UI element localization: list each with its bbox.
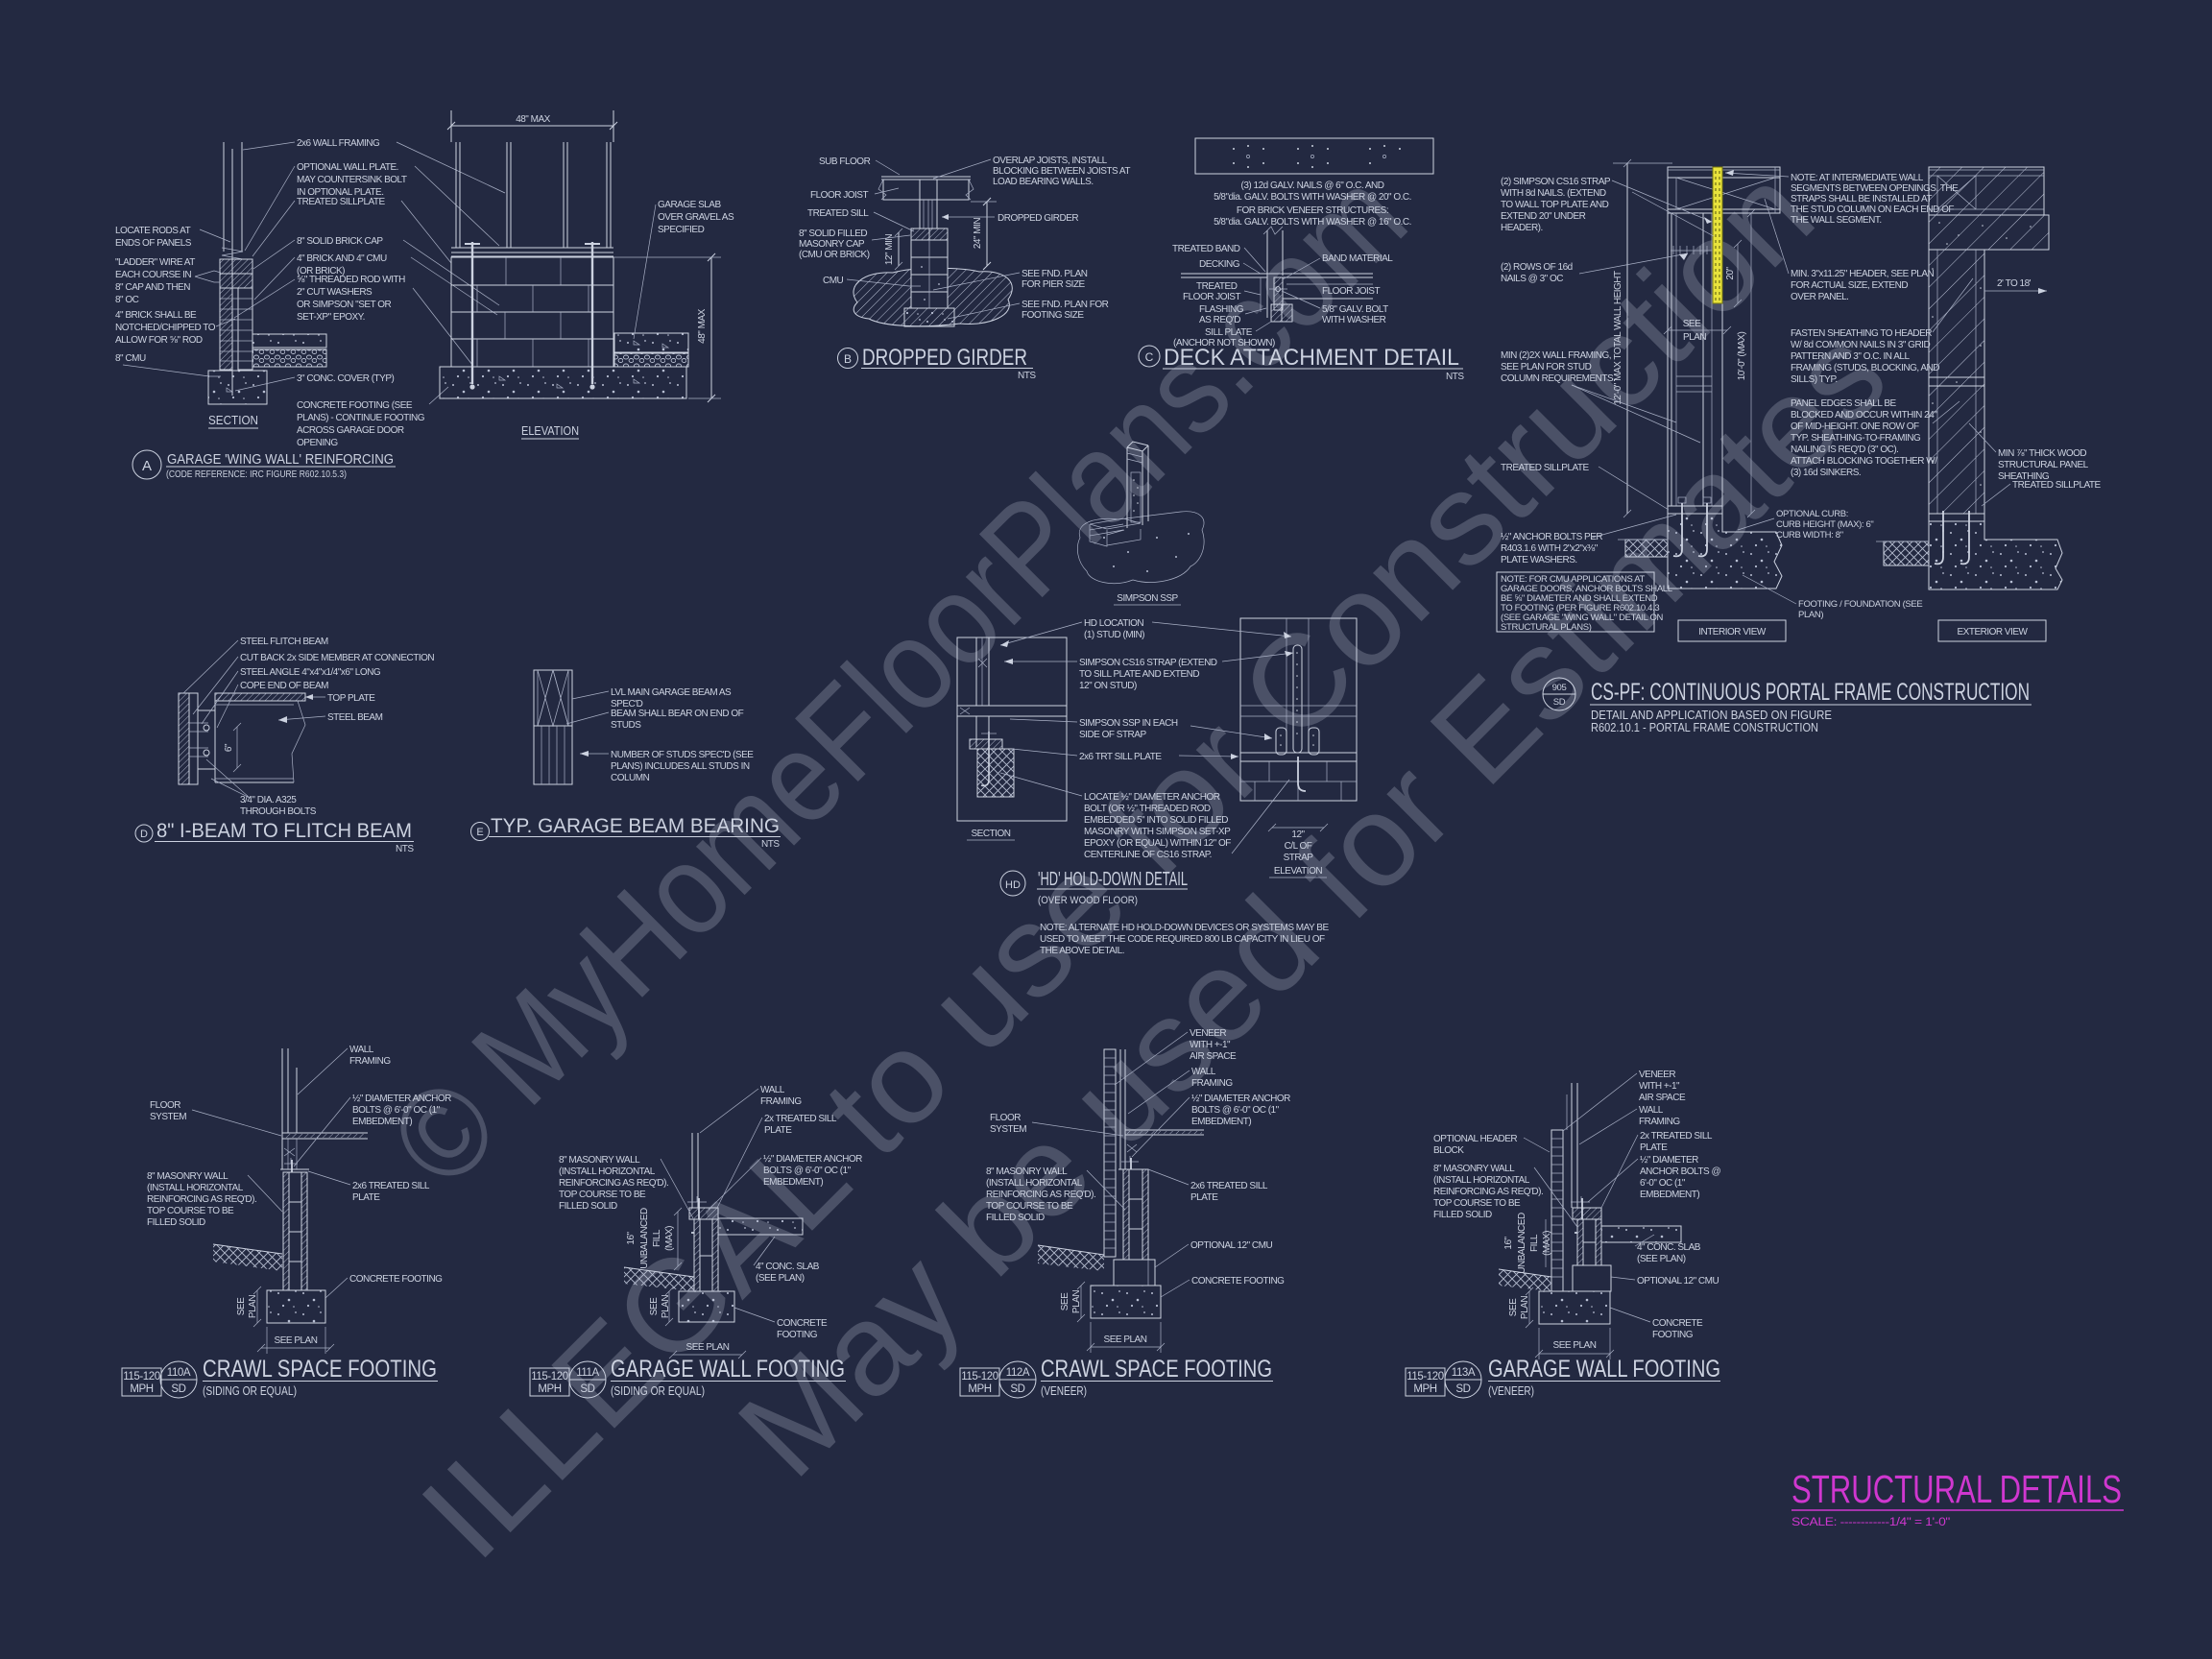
svg-text:THROUGH BOLTS: THROUGH BOLTS — [240, 806, 317, 817]
svg-text:OVER PANEL.: OVER PANEL. — [1791, 292, 1848, 302]
svg-text:OPTIONAL CURB:: OPTIONAL CURB: — [1776, 509, 1848, 519]
svg-text:MASONRY CAP: MASONRY CAP — [799, 239, 865, 250]
svg-text:SYSTEM: SYSTEM — [990, 1124, 1026, 1135]
svg-text:SILLS) TYP.: SILLS) TYP. — [1791, 374, 1838, 385]
svg-text:LOCATE ½" DIAMETER ANCHOR: LOCATE ½" DIAMETER ANCHOR — [1084, 792, 1220, 803]
svg-text:BAND MATERIAL: BAND MATERIAL — [1322, 253, 1393, 264]
svg-text:CONCRETE FOOTING (SEE: CONCRETE FOOTING (SEE — [297, 400, 413, 411]
svg-text:DROPPED GIRDER: DROPPED GIRDER — [862, 345, 1027, 371]
svg-text:W/ 8d COMMON NAILS IN 3" GRID: W/ 8d COMMON NAILS IN 3" GRID — [1791, 340, 1930, 350]
svg-text:(2) ROWS OF 16d: (2) ROWS OF 16d — [1501, 262, 1573, 273]
svg-text:PLAN: PLAN — [1071, 1290, 1082, 1313]
svg-text:3" CONC. COVER (TYP): 3" CONC. COVER (TYP) — [297, 373, 395, 384]
svg-text:LOAD BEARING WALLS.: LOAD BEARING WALLS. — [993, 177, 1094, 187]
svg-text:8" CMU: 8" CMU — [115, 353, 146, 364]
svg-text:SPECIFIED: SPECIFIED — [658, 225, 705, 235]
svg-text:MPH: MPH — [1413, 1383, 1436, 1395]
svg-text:STEEL FLITCH BEAM: STEEL FLITCH BEAM — [240, 637, 328, 647]
svg-text:PLAN): PLAN) — [1798, 610, 1823, 620]
svg-text:½" DIAMETER ANCHOR: ½" DIAMETER ANCHOR — [1191, 1094, 1290, 1104]
svg-text:FLOOR JOIST: FLOOR JOIST — [810, 190, 868, 201]
svg-text:12'-0" MAX TOTAL WALL HEIGHT: 12'-0" MAX TOTAL WALL HEIGHT — [1613, 271, 1623, 405]
svg-text:FOOTING: FOOTING — [777, 1330, 818, 1340]
svg-text:SEE PLAN: SEE PLAN — [1104, 1334, 1147, 1345]
svg-text:5/8" GALV. BOLT: 5/8" GALV. BOLT — [1322, 304, 1388, 315]
svg-text:NAILS @ 3" OC: NAILS @ 3" OC — [1501, 274, 1563, 284]
svg-text:ELEVATION: ELEVATION — [1274, 866, 1322, 877]
svg-text:FILLED SOLID: FILLED SOLID — [986, 1213, 1045, 1223]
svg-text:TREATED SILLPLATE: TREATED SILLPLATE — [1501, 463, 1590, 473]
svg-text:SD: SD — [171, 1383, 185, 1395]
svg-text:6": 6" — [224, 743, 234, 752]
svg-text:EMBEDMENT): EMBEDMENT) — [763, 1177, 823, 1188]
svg-text:VENEER: VENEER — [1639, 1070, 1675, 1080]
svg-text:FRAMING: FRAMING — [1639, 1117, 1680, 1127]
svg-text:½" DIAMETER ANCHOR: ½" DIAMETER ANCHOR — [763, 1154, 862, 1165]
svg-text:TO WALL TOP PLATE AND: TO WALL TOP PLATE AND — [1501, 200, 1609, 210]
svg-text:4" CONC. SLAB: 4" CONC. SLAB — [756, 1262, 820, 1272]
svg-text:COLUMN: COLUMN — [611, 773, 650, 783]
svg-text:CONCRETE: CONCRETE — [777, 1318, 828, 1329]
svg-text:NAILING IS REQ'D (3" OC).: NAILING IS REQ'D (3" OC). — [1791, 445, 1898, 455]
svg-text:SYSTEM: SYSTEM — [150, 1112, 186, 1122]
svg-text:PLAN: PLAN — [1520, 1296, 1530, 1319]
svg-text:FILL: FILL — [1529, 1234, 1540, 1252]
svg-text:WITH WASHER: WITH WASHER — [1322, 315, 1386, 325]
svg-text:SEE PLAN: SEE PLAN — [275, 1335, 318, 1346]
svg-text:(MAX): (MAX) — [1542, 1231, 1552, 1256]
svg-text:AIR SPACE: AIR SPACE — [1190, 1051, 1237, 1062]
svg-text:PLATE: PLATE — [764, 1125, 792, 1136]
svg-text:OF MID-HEIGHT. ONE ROW OF: OF MID-HEIGHT. ONE ROW OF — [1791, 421, 1919, 432]
svg-text:(SEE PLAN): (SEE PLAN) — [1637, 1254, 1686, 1264]
svg-text:FLASHING: FLASHING — [1199, 304, 1244, 315]
svg-text:BOLTS @ 6'-0" OC (1": BOLTS @ 6'-0" OC (1" — [352, 1105, 441, 1116]
svg-text:CRAWL SPACE FOOTING: CRAWL SPACE FOOTING — [203, 1356, 437, 1382]
svg-text:115-120: 115-120 — [961, 1371, 998, 1382]
svg-text:FLOOR JOIST: FLOOR JOIST — [1322, 286, 1380, 297]
svg-text:PLATE: PLATE — [1640, 1142, 1668, 1153]
svg-text:SD: SD — [1455, 1383, 1470, 1395]
svg-text:"LADDER" WIRE AT: "LADDER" WIRE AT — [115, 257, 195, 268]
svg-text:MPH: MPH — [130, 1383, 153, 1395]
svg-text:(VENEER): (VENEER) — [1041, 1384, 1087, 1398]
svg-text:CONCRETE FOOTING: CONCRETE FOOTING — [1191, 1276, 1285, 1286]
svg-text:PLANS) - CONTINUE FOOTING: PLANS) - CONTINUE FOOTING — [297, 413, 425, 423]
svg-text:½" ANCHOR BOLTS PER: ½" ANCHOR BOLTS PER — [1501, 532, 1602, 542]
svg-text:16": 16" — [1503, 1236, 1514, 1249]
svg-text:REINFORCING AS REQ'D).: REINFORCING AS REQ'D). — [986, 1190, 1095, 1200]
svg-text:NTS: NTS — [761, 839, 780, 850]
svg-text:4" BRICK SHALL BE: 4" BRICK SHALL BE — [115, 310, 197, 321]
svg-text:COPE END OF BEAM: COPE END OF BEAM — [240, 681, 328, 691]
svg-text:(CODE REFERENCE: IRC FIGURE R6: (CODE REFERENCE: IRC FIGURE R602.10.5.3) — [166, 469, 347, 480]
svg-text:SILL PLATE: SILL PLATE — [1205, 327, 1253, 338]
svg-text:48" MAX: 48" MAX — [697, 308, 708, 343]
svg-text:NOTCHED/CHIPPED TO: NOTCHED/CHIPPED TO — [115, 323, 216, 333]
svg-text:SEE PLAN: SEE PLAN — [686, 1342, 730, 1353]
svg-text:SECTION: SECTION — [972, 829, 1011, 839]
svg-text:(INSTALL HORIZONTAL: (INSTALL HORIZONTAL — [147, 1183, 244, 1193]
svg-text:(INSTALL HORIZONTAL: (INSTALL HORIZONTAL — [559, 1166, 656, 1177]
svg-text:8" MASONRY WALL: 8" MASONRY WALL — [559, 1155, 640, 1166]
svg-text:(VENEER): (VENEER) — [1488, 1384, 1534, 1398]
svg-text:FILLED SOLID: FILLED SOLID — [147, 1217, 205, 1228]
svg-text:DECK ATTACHMENT DETAIL: DECK ATTACHMENT DETAIL — [1164, 345, 1459, 371]
svg-text:MIN (2)2X WALL FRAMING,: MIN (2)2X WALL FRAMING, — [1501, 350, 1611, 361]
svg-text:HD LOCATION: HD LOCATION — [1084, 618, 1143, 629]
svg-text:TOP COURSE TO BE: TOP COURSE TO BE — [986, 1201, 1073, 1212]
svg-text:BOLT (OR ½" THREADED ROD: BOLT (OR ½" THREADED ROD — [1084, 804, 1211, 814]
svg-text:8" SOLID FILLED: 8" SOLID FILLED — [799, 228, 867, 239]
svg-text:FOOTING: FOOTING — [1652, 1330, 1694, 1340]
svg-text:GARAGE WALL FOOTING: GARAGE WALL FOOTING — [1488, 1356, 1720, 1382]
svg-text:(1) STUD (MIN): (1) STUD (MIN) — [1084, 630, 1144, 640]
svg-text:FRAMING (STUDS, BLOCKING, AND: FRAMING (STUDS, BLOCKING, AND — [1791, 363, 1939, 373]
svg-text:A: A — [142, 458, 152, 474]
svg-text:½" DIAMETER ANCHOR: ½" DIAMETER ANCHOR — [352, 1094, 451, 1104]
svg-text:STRUCTURAL PANEL: STRUCTURAL PANEL — [1998, 460, 2089, 470]
svg-text:BLOCKING BETWEEN JOISTS AT: BLOCKING BETWEEN JOISTS AT — [993, 166, 1130, 177]
svg-text:12": 12" — [1291, 829, 1305, 840]
svg-text:R403.1.6 WITH 2"x2"x⅜": R403.1.6 WITH 2"x2"x⅜" — [1501, 543, 1599, 554]
svg-text:PLAN: PLAN — [1683, 332, 1706, 343]
svg-text:5/8"dia. GALV. BOLTS WITH WASH: 5/8"dia. GALV. BOLTS WITH WASHER @ 20" O… — [1214, 192, 1411, 203]
svg-text:REINFORCING AS REQ'D).: REINFORCING AS REQ'D). — [1433, 1187, 1543, 1197]
svg-text:SCALE: ------------1/4" = 1'-0: SCALE: ------------1/4" = 1'-0" — [1791, 1517, 1950, 1528]
svg-text:COLUMN REQUIREMENTS.: COLUMN REQUIREMENTS. — [1501, 373, 1615, 384]
svg-text:8" MASONRY WALL: 8" MASONRY WALL — [986, 1166, 1068, 1177]
svg-text:EMBEDMENT): EMBEDMENT) — [1640, 1190, 1699, 1200]
svg-text:OR SIMPSON "SET OR: OR SIMPSON "SET OR — [297, 300, 392, 310]
svg-text:SIMPSON CS16 STRAP (EXTEND: SIMPSON CS16 STRAP (EXTEND — [1079, 658, 1217, 668]
svg-text:PANEL EDGES SHALL BE: PANEL EDGES SHALL BE — [1791, 398, 1897, 409]
svg-text:CONCRETE: CONCRETE — [1652, 1318, 1703, 1329]
svg-text:C/L OF: C/L OF — [1285, 841, 1312, 852]
svg-text:113A: 113A — [1452, 1367, 1476, 1379]
svg-text:(OVER WOOD FLOOR): (OVER WOOD FLOOR) — [1038, 895, 1138, 906]
svg-text:SET-XP" EPOXY.: SET-XP" EPOXY. — [297, 312, 365, 323]
svg-text:2x6 TRT SILL PLATE: 2x6 TRT SILL PLATE — [1079, 752, 1162, 762]
svg-text:TREATED SILLPLATE: TREATED SILLPLATE — [2012, 480, 2102, 491]
svg-text:905: 905 — [1552, 683, 1567, 693]
svg-text:EPOXY (OR EQUAL) WITHIN 12" OF: EPOXY (OR EQUAL) WITHIN 12" OF — [1084, 838, 1231, 849]
svg-text:8" SOLID BRICK CAP: 8" SOLID BRICK CAP — [297, 236, 383, 247]
svg-text:OPTIONAL 12" CMU: OPTIONAL 12" CMU — [1190, 1240, 1272, 1251]
svg-text:SIMPSON SSP: SIMPSON SSP — [1117, 593, 1178, 604]
svg-text:12" ON STUD): 12" ON STUD) — [1079, 681, 1137, 691]
svg-text:2x TREATED SILL: 2x TREATED SILL — [1640, 1131, 1713, 1142]
svg-text:20": 20" — [1725, 266, 1736, 279]
svg-text:INTERIOR VIEW: INTERIOR VIEW — [1698, 627, 1767, 637]
svg-text:CURB WIDTH: 8": CURB WIDTH: 8" — [1776, 530, 1843, 541]
svg-text:STEEL ANGLE 4"x4"x1/4"x6" LONG: STEEL ANGLE 4"x4"x1/4"x6" LONG — [240, 667, 381, 678]
svg-text:STUDS: STUDS — [611, 720, 641, 731]
svg-text:(2) SIMPSON CS16 STRAP: (2) SIMPSON CS16 STRAP — [1501, 177, 1611, 187]
svg-text:24" MIN: 24" MIN — [973, 218, 983, 250]
svg-text:EXTEND 20" UNDER: EXTEND 20" UNDER — [1501, 211, 1586, 222]
svg-text:2x6 WALL FRAMING: 2x6 WALL FRAMING — [297, 138, 380, 149]
svg-text:115-120: 115-120 — [1407, 1371, 1444, 1382]
svg-text:SIMPSON SSP IN EACH: SIMPSON SSP IN EACH — [1079, 718, 1178, 729]
svg-text:(MAX): (MAX) — [664, 1226, 675, 1251]
svg-text:D: D — [140, 829, 148, 840]
svg-text:MASONRY WITH SIMPSON SET-XP: MASONRY WITH SIMPSON SET-XP — [1084, 827, 1231, 837]
svg-text:FRAMING: FRAMING — [760, 1096, 802, 1107]
svg-text:⅝" THREADED ROD WITH: ⅝" THREADED ROD WITH — [297, 275, 405, 285]
svg-text:8" MASONRY WALL: 8" MASONRY WALL — [147, 1171, 228, 1182]
svg-text:10'-0" (MAX): 10'-0" (MAX) — [1737, 332, 1747, 381]
svg-text:5/8"dia. GALV. BOLTS WITH WASH: 5/8"dia. GALV. BOLTS WITH WASHER @ 16" O… — [1214, 217, 1411, 228]
svg-text:OVER GRAVEL AS: OVER GRAVEL AS — [658, 212, 734, 223]
svg-text:SUB FLOOR: SUB FLOOR — [819, 156, 871, 167]
svg-text:ALLOW FOR ⅝" ROD: ALLOW FOR ⅝" ROD — [115, 335, 203, 346]
svg-text:112A: 112A — [1006, 1367, 1030, 1379]
svg-text:WITH +-1": WITH +-1" — [1639, 1081, 1680, 1092]
svg-text:OPTIONAL 12" CMU: OPTIONAL 12" CMU — [1637, 1276, 1719, 1286]
svg-text:USED TO MEET THE CODE REQUIRED: USED TO MEET THE CODE REQUIRED 800 LB CA… — [1040, 934, 1325, 945]
svg-text:BOLTS @ 6'-0" OC (1": BOLTS @ 6'-0" OC (1" — [763, 1166, 852, 1176]
svg-text:CMU: CMU — [823, 276, 844, 286]
svg-text:TREATED SILL: TREATED SILL — [807, 208, 869, 219]
svg-text:FILLED SOLID: FILLED SOLID — [559, 1201, 617, 1212]
svg-text:UNBALANCED: UNBALANCED — [639, 1208, 650, 1269]
svg-text:ENDS OF PANELS: ENDS OF PANELS — [115, 238, 192, 249]
svg-text:PATTERN AND 3" O.C. IN ALL: PATTERN AND 3" O.C. IN ALL — [1791, 351, 1910, 362]
svg-text:PLANS) INCLUDES ALL STUDS IN: PLANS) INCLUDES ALL STUDS IN — [611, 761, 750, 772]
svg-text:FOR PIER SIZE: FOR PIER SIZE — [1022, 279, 1086, 290]
svg-text:NTS: NTS — [396, 844, 414, 854]
svg-text:BEAM SHALL BEAR ON END OF: BEAM SHALL BEAR ON END OF — [611, 709, 744, 719]
svg-text:(SIDING OR EQUAL): (SIDING OR EQUAL) — [203, 1384, 297, 1398]
svg-text:115-120: 115-120 — [123, 1371, 160, 1382]
svg-text:ACROSS GARAGE DOOR: ACROSS GARAGE DOOR — [297, 425, 404, 436]
svg-text:FLOOR: FLOOR — [990, 1113, 1021, 1123]
svg-text:4" CONC. SLAB: 4" CONC. SLAB — [1637, 1242, 1701, 1253]
svg-text:TOP PLATE: TOP PLATE — [327, 693, 375, 704]
svg-text:FRAMING: FRAMING — [349, 1056, 391, 1067]
svg-text:16": 16" — [626, 1231, 637, 1244]
svg-text:TREATED BAND: TREATED BAND — [1172, 244, 1240, 254]
svg-text:LVL MAIN GARAGE BEAM AS: LVL MAIN GARAGE BEAM AS — [611, 687, 732, 698]
svg-text:MIN ⅞" THICK WOOD: MIN ⅞" THICK WOOD — [1998, 448, 2086, 459]
svg-text:TOP COURSE TO BE: TOP COURSE TO BE — [1433, 1198, 1521, 1209]
svg-text:PLATE: PLATE — [352, 1192, 380, 1203]
svg-text:UNBALANCED: UNBALANCED — [1517, 1213, 1527, 1274]
svg-text:B: B — [844, 352, 852, 366]
svg-text:TYP. GARAGE BEAM BEARING: TYP. GARAGE BEAM BEARING — [491, 815, 780, 837]
svg-text:FOR ACTUAL SIZE, EXTEND: FOR ACTUAL SIZE, EXTEND — [1791, 280, 1908, 291]
svg-text:NTS: NTS — [1446, 372, 1464, 382]
svg-text:STRAP: STRAP — [1284, 853, 1314, 863]
svg-text:115-120: 115-120 — [531, 1371, 568, 1382]
svg-text:THE ABOVE DETAIL.: THE ABOVE DETAIL. — [1040, 946, 1124, 956]
svg-text:EXTERIOR VIEW: EXTERIOR VIEW — [1958, 627, 2029, 637]
svg-text:REINFORCING AS REQ'D).: REINFORCING AS REQ'D). — [147, 1194, 256, 1205]
svg-text:6'-0" OC (1": 6'-0" OC (1" — [1640, 1178, 1686, 1189]
svg-text:WALL: WALL — [1639, 1105, 1664, 1116]
svg-text:(3) 12d GALV. NAILS @ 6" O.C.: (3) 12d GALV. NAILS @ 6" O.C. AND — [1241, 180, 1384, 191]
svg-text:2x TREATED SILL: 2x TREATED SILL — [764, 1114, 837, 1124]
svg-text:TO SILL PLATE AND EXTEND: TO SILL PLATE AND EXTEND — [1079, 669, 1199, 680]
svg-text:SEE PLAN FOR STUD: SEE PLAN FOR STUD — [1501, 362, 1592, 373]
svg-text:REINFORCING AS REQ'D).: REINFORCING AS REQ'D). — [559, 1178, 668, 1189]
svg-text:E: E — [476, 827, 483, 838]
svg-text:GARAGE SLAB: GARAGE SLAB — [658, 200, 721, 210]
svg-text:R602.10.1 - PORTAL FRAME CONST: R602.10.1 - PORTAL FRAME CONSTRUCTION — [1591, 721, 1818, 734]
svg-text:GARAGE WALL FOOTING: GARAGE WALL FOOTING — [611, 1356, 845, 1382]
svg-text:SEE: SEE — [1060, 1292, 1070, 1310]
svg-text:THE WALL SEGMENT.: THE WALL SEGMENT. — [1791, 215, 1882, 226]
svg-text:C: C — [1145, 350, 1154, 364]
svg-text:GARAGE 'WING WALL' REINFORCING: GARAGE 'WING WALL' REINFORCING — [167, 451, 394, 468]
svg-text:CONCRETE FOOTING: CONCRETE FOOTING — [349, 1274, 443, 1285]
svg-text:(SEE PLAN): (SEE PLAN) — [756, 1273, 805, 1284]
svg-text:EMBEDMENT): EMBEDMENT) — [1191, 1117, 1251, 1127]
svg-text:WITH +-1": WITH +-1" — [1190, 1040, 1231, 1050]
svg-text:SD: SD — [580, 1383, 594, 1395]
svg-text:EMBEDDED 5" INTO SOLID FILLED: EMBEDDED 5" INTO SOLID FILLED — [1084, 815, 1228, 826]
svg-text:8" I-BEAM TO FLITCH BEAM: 8" I-BEAM TO FLITCH BEAM — [156, 820, 412, 842]
svg-text:2" CUT WASHERS: 2" CUT WASHERS — [297, 287, 373, 298]
svg-text:8" OC: 8" OC — [115, 295, 139, 305]
svg-text:VENEER: VENEER — [1190, 1028, 1226, 1039]
svg-text:STEEL BEAM: STEEL BEAM — [327, 712, 383, 723]
svg-text:WALL: WALL — [1191, 1067, 1216, 1077]
svg-text:(INSTALL HORIZONTAL: (INSTALL HORIZONTAL — [986, 1178, 1083, 1189]
svg-text:CS-PF: CONTINUOUS PORTAL FRAME: CS-PF: CONTINUOUS PORTAL FRAME CONSTRUCT… — [1591, 679, 2030, 706]
svg-text:SEE: SEE — [649, 1297, 660, 1315]
svg-text:WITH 8d NAILS. (EXTEND: WITH 8d NAILS. (EXTEND — [1501, 188, 1606, 199]
svg-text:DROPPED GIRDER: DROPPED GIRDER — [998, 213, 1078, 224]
svg-text:TREATED: TREATED — [1196, 281, 1238, 292]
svg-text:NUMBER OF STUDS SPEC'D (SEE: NUMBER OF STUDS SPEC'D (SEE — [611, 750, 754, 760]
svg-text:8" CAP AND THEN: 8" CAP AND THEN — [115, 282, 190, 293]
svg-text:(INSTALL HORIZONTAL: (INSTALL HORIZONTAL — [1433, 1175, 1530, 1186]
svg-text:PLAN: PLAN — [248, 1295, 258, 1318]
svg-text:48" MAX: 48" MAX — [516, 114, 550, 125]
svg-text:NOTE: ALTERNATE HD HOLD-DOWN D: NOTE: ALTERNATE HD HOLD-DOWN DEVICES OR … — [1040, 923, 1329, 933]
svg-text:SEE FND. PLAN: SEE FND. PLAN — [1022, 269, 1088, 279]
svg-text:TYP. SHEATHING-TO-FRAMING: TYP. SHEATHING-TO-FRAMING — [1791, 433, 1921, 444]
svg-text:FRAMING: FRAMING — [1191, 1078, 1233, 1089]
svg-text:2x6 TREATED SILL: 2x6 TREATED SILL — [1190, 1181, 1268, 1191]
svg-text:DETAIL AND APPLICATION BASED O: DETAIL AND APPLICATION BASED ON FIGURE — [1591, 709, 1832, 722]
svg-text:FASTEN SHEATHING TO HEADER: FASTEN SHEATHING TO HEADER — [1791, 328, 1932, 339]
svg-text:MAY COUNTERSINK BOLT: MAY COUNTERSINK BOLT — [297, 175, 407, 185]
svg-text:4" BRICK AND 4" CMU: 4" BRICK AND 4" CMU — [297, 253, 387, 264]
svg-text:BOLTS @ 6'-0" OC (1": BOLTS @ 6'-0" OC (1" — [1191, 1105, 1280, 1116]
svg-text:HEADER).: HEADER). — [1501, 223, 1543, 233]
svg-text:8" MASONRY WALL: 8" MASONRY WALL — [1433, 1164, 1515, 1174]
svg-text:EMBEDMENT): EMBEDMENT) — [352, 1117, 412, 1127]
svg-text:111A: 111A — [576, 1367, 599, 1379]
svg-text:FOOTING / FOUNDATION (SEE: FOOTING / FOUNDATION (SEE — [1798, 599, 1922, 610]
svg-text:OPENING: OPENING — [297, 438, 338, 448]
svg-text:FLOOR JOIST: FLOOR JOIST — [1183, 292, 1240, 302]
svg-text:TREATED SILLPLATE: TREATED SILLPLATE — [297, 197, 386, 207]
svg-text:STRAPS SHALL BE INSTALLED AT: STRAPS SHALL BE INSTALLED AT — [1791, 194, 1932, 204]
svg-text:FOR BRICK VENEER STRUCTURES:: FOR BRICK VENEER STRUCTURES: — [1237, 205, 1388, 216]
svg-text:(SIDING OR EQUAL): (SIDING OR EQUAL) — [611, 1384, 705, 1398]
svg-text:BLOCKED AND OCCUR WITHIN 24": BLOCKED AND OCCUR WITHIN 24" — [1791, 410, 1937, 421]
svg-text:'HD' HOLD-DOWN DETAIL: 'HD' HOLD-DOWN DETAIL — [1038, 869, 1188, 890]
svg-text:OPTIONAL WALL PLATE.: OPTIONAL WALL PLATE. — [297, 162, 398, 173]
svg-text:TOP COURSE TO BE: TOP COURSE TO BE — [559, 1190, 646, 1200]
svg-text:AS REQ'D: AS REQ'D — [1199, 315, 1240, 325]
svg-text:ATTACH BLOCKING TOGETHER W/: ATTACH BLOCKING TOGETHER W/ — [1791, 456, 1937, 467]
svg-text:FILL: FILL — [652, 1229, 662, 1247]
svg-text:PLAN: PLAN — [661, 1295, 671, 1318]
svg-text:(3) 16d SINKERS.: (3) 16d SINKERS. — [1791, 468, 1861, 478]
svg-text:MPH: MPH — [968, 1383, 991, 1395]
svg-text:DECKING: DECKING — [1199, 259, 1240, 270]
svg-text:½" DIAMETER: ½" DIAMETER — [1640, 1155, 1698, 1166]
svg-text:(CMU OR BRICK): (CMU OR BRICK) — [799, 250, 870, 260]
svg-text:STRUCTURAL DETAILS: STRUCTURAL DETAILS — [1791, 1467, 2122, 1511]
svg-text:CRAWL SPACE FOOTING: CRAWL SPACE FOOTING — [1041, 1356, 1272, 1382]
svg-text:CENTERLINE OF CS16 STRAP.: CENTERLINE OF CS16 STRAP. — [1084, 850, 1212, 860]
svg-text:110A: 110A — [167, 1367, 191, 1379]
svg-text:TOP COURSE TO BE: TOP COURSE TO BE — [147, 1206, 234, 1216]
svg-text:AIR SPACE: AIR SPACE — [1639, 1093, 1686, 1103]
svg-text:ELEVATION: ELEVATION — [521, 423, 579, 438]
svg-text:FILLED SOLID: FILLED SOLID — [1433, 1210, 1492, 1220]
svg-text:WALL: WALL — [349, 1045, 374, 1055]
svg-text:MPH: MPH — [538, 1383, 561, 1395]
svg-text:PLATE WASHERS.: PLATE WASHERS. — [1501, 555, 1577, 565]
svg-text:SECTION: SECTION — [208, 413, 258, 427]
svg-text:OVERLAP JOISTS, INSTALL: OVERLAP JOISTS, INSTALL — [993, 156, 1108, 166]
svg-text:SEE PLAN: SEE PLAN — [1553, 1340, 1597, 1351]
svg-text:WALL: WALL — [760, 1085, 785, 1095]
svg-text:MIN. 3"x11.25" HEADER, SEE PLA: MIN. 3"x11.25" HEADER, SEE PLAN — [1791, 269, 1935, 279]
svg-text:SEE: SEE — [236, 1297, 247, 1315]
svg-text:FOOTING SIZE: FOOTING SIZE — [1022, 310, 1084, 321]
svg-text:CUT BACK 2x SIDE MEMBER AT CO: CUT BACK 2x SIDE MEMBER AT CONNECTION — [240, 653, 434, 663]
svg-text:2x6 TREATED SILL: 2x6 TREATED SILL — [352, 1181, 430, 1191]
svg-text:NTS: NTS — [1018, 371, 1036, 381]
svg-text:SD: SD — [1010, 1383, 1024, 1395]
svg-text:SEE: SEE — [1508, 1298, 1519, 1316]
svg-text:ANCHOR BOLTS @: ANCHOR BOLTS @ — [1640, 1166, 1720, 1177]
svg-text:BLOCK: BLOCK — [1433, 1145, 1464, 1156]
svg-text:OPTIONAL HEADER: OPTIONAL HEADER — [1433, 1134, 1517, 1144]
svg-text:NOTE: AT INTERMEDIATE WALL: NOTE: AT INTERMEDIATE WALL — [1791, 173, 1924, 183]
svg-text:HD: HD — [1005, 879, 1021, 891]
svg-text:FLOOR: FLOOR — [150, 1100, 180, 1111]
svg-text:EACH COURSE IN: EACH COURSE IN — [115, 270, 191, 280]
svg-text:SEE FND. PLAN FOR: SEE FND. PLAN FOR — [1022, 300, 1109, 310]
svg-text:SEE: SEE — [1683, 319, 1701, 329]
svg-text:PLATE: PLATE — [1190, 1192, 1218, 1203]
svg-text:CURB HEIGHT (MAX): 6": CURB HEIGHT (MAX): 6" — [1776, 519, 1873, 530]
svg-text:2' TO 18': 2' TO 18' — [1997, 278, 2032, 289]
svg-text:LOCATE RODS AT: LOCATE RODS AT — [115, 226, 191, 236]
svg-text:SD: SD — [1553, 697, 1566, 708]
svg-text:SIDE OF STRAP: SIDE OF STRAP — [1079, 730, 1146, 740]
svg-text:STRUCTURAL PLANS): STRUCTURAL PLANS) — [1501, 622, 1592, 633]
